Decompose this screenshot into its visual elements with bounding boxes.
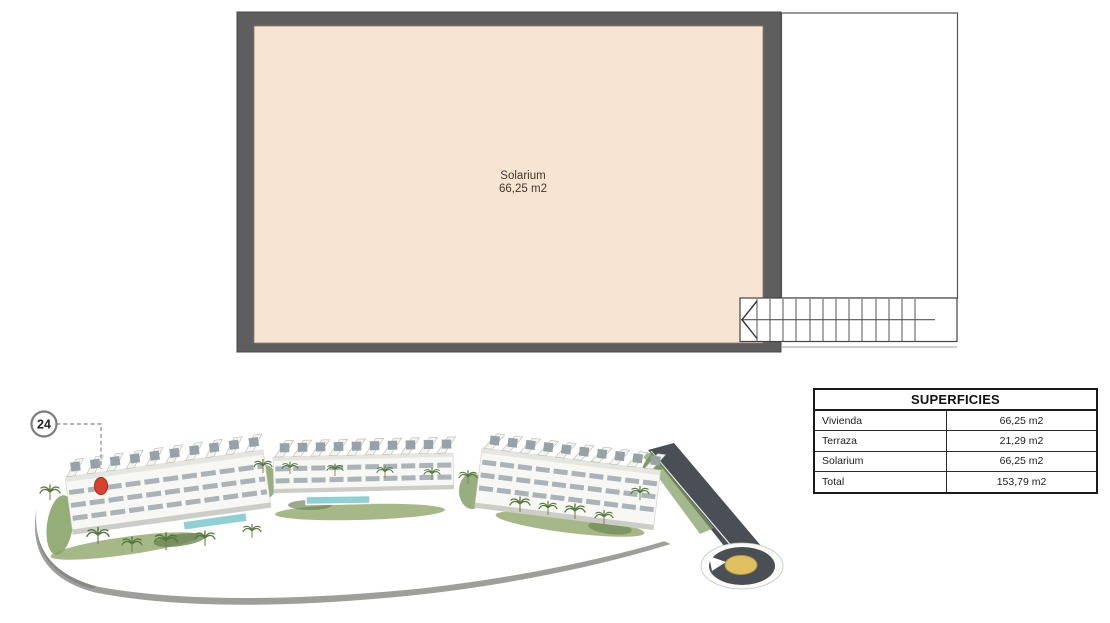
table-row: Terraza 21,29 m2	[815, 431, 1096, 451]
row-label: Vivienda	[815, 411, 947, 430]
row-label: Terraza	[815, 431, 947, 450]
building-render	[40, 432, 783, 598]
plan-drawing-canvas: Solarium 66,25 m2	[0, 0, 1110, 623]
unit-24-highlight-marker	[95, 478, 108, 495]
terrace-area	[782, 13, 958, 298]
row-value: 66,25 m2	[947, 452, 1096, 471]
unit-number-label: 24	[37, 418, 51, 432]
roundabout	[701, 543, 783, 589]
table-row: Solarium 66,25 m2	[815, 452, 1096, 472]
room-name-label: Solarium	[500, 170, 545, 182]
row-value: 21,29 m2	[947, 431, 1096, 450]
staircase	[740, 298, 957, 342]
table-row: Vivienda 66,25 m2	[815, 411, 1096, 431]
pool-middle	[306, 495, 370, 504]
row-value: 66,25 m2	[947, 411, 1096, 430]
row-label: Solarium	[815, 452, 947, 471]
building-block-middle	[273, 437, 457, 493]
superficies-table-title: SUPERFICIES	[815, 390, 1096, 411]
row-label: Total	[815, 472, 947, 491]
row-value: 153,79 m2	[947, 472, 1096, 491]
superficies-table: SUPERFICIES Vivienda 66,25 m2 Terraza 21…	[813, 388, 1098, 494]
room-area-label: 66,25 m2	[499, 183, 547, 195]
plan-sheet: Solarium 66,25 m2	[0, 0, 1110, 623]
roundabout-center	[725, 556, 757, 575]
table-row: Total 153,79 m2	[815, 472, 1096, 491]
floor-plan: Solarium 66,25 m2	[237, 12, 958, 352]
